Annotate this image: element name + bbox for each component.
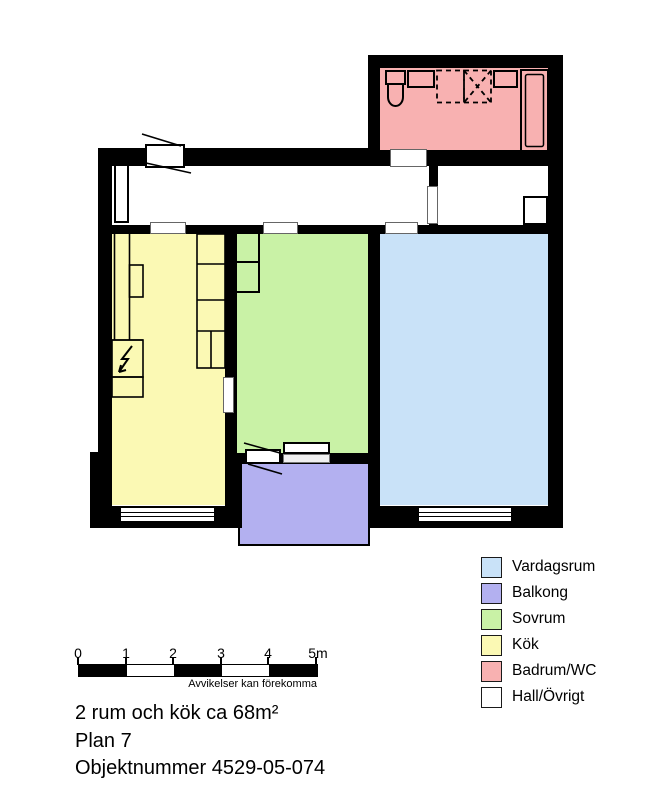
legend-swatch-vardagsrum xyxy=(481,557,502,578)
wall-right xyxy=(548,55,563,528)
legend-label: Balkong xyxy=(512,584,568,602)
room-bedroom xyxy=(237,234,368,453)
plan-line: Plan 7 xyxy=(75,728,325,756)
legend-item: Balkong xyxy=(481,583,596,603)
bedroom-window-sill xyxy=(283,454,330,463)
area-line: 2 rum och kök ca 68m² xyxy=(75,700,325,728)
scale-segment xyxy=(269,665,317,676)
legend-item: Hall/Övrigt xyxy=(481,687,596,707)
hall-wardrobe xyxy=(114,164,129,223)
footer-text: 2 rum och kök ca 68m² Plan 7 Objektnumme… xyxy=(75,700,325,783)
scale-caption: Avvikelser kan förekomma xyxy=(78,678,317,690)
kitchen-bedroom-opening xyxy=(223,377,234,413)
bathroom-door-opening xyxy=(390,149,427,167)
room-bathroom xyxy=(380,68,548,150)
room-livingroom xyxy=(380,234,548,505)
wall-bathroom-top xyxy=(368,55,563,68)
balcony-door xyxy=(245,449,281,464)
legend-item: Sovrum xyxy=(481,609,596,629)
window-line xyxy=(419,512,511,513)
room-hall-main xyxy=(112,166,429,225)
legend-swatch-badrum xyxy=(481,661,502,682)
legend-label: Kök xyxy=(512,636,539,654)
legend-item: Vardagsrum xyxy=(481,557,596,577)
room-balcony xyxy=(238,461,370,546)
hall-divider-door-opening xyxy=(427,186,438,224)
legend: Vardagsrum Balkong Sovrum Kök Badrum/WC … xyxy=(481,557,596,713)
livingroom-door-opening xyxy=(385,222,418,234)
window-line xyxy=(419,516,511,517)
legend-item: Kök xyxy=(481,635,596,655)
object-number-line: Objektnummer 4529-05-074 xyxy=(75,755,325,783)
kitchen-window xyxy=(119,506,216,523)
scale-segment xyxy=(127,665,175,676)
bedroom-window xyxy=(283,442,330,454)
scale-segment xyxy=(174,665,222,676)
legend-label: Vardagsrum xyxy=(512,558,595,576)
scale-number: 5m xyxy=(308,645,327,661)
legend-swatch-kok xyxy=(481,635,502,656)
bedroom-door-opening xyxy=(263,222,298,234)
wall-balcony-left xyxy=(225,453,242,528)
legend-label: Sovrum xyxy=(512,610,565,628)
entrance-door xyxy=(145,144,185,168)
scale-segment xyxy=(222,665,270,676)
legend-label: Hall/Övrigt xyxy=(512,688,584,706)
wall-top xyxy=(98,148,380,166)
floorplan-page: Vardagsrum Balkong Sovrum Kök Badrum/WC … xyxy=(0,0,659,800)
scale-segment xyxy=(79,665,127,676)
scale-bar xyxy=(78,664,318,677)
livingroom-window xyxy=(417,506,513,523)
legend-item: Badrum/WC xyxy=(481,661,596,681)
hall-right-closet xyxy=(523,196,548,225)
kitchen-door-opening xyxy=(150,222,186,234)
legend-swatch-balkong xyxy=(481,583,502,604)
legend-label: Badrum/WC xyxy=(512,662,596,680)
window-line xyxy=(121,512,214,513)
wall-bedroom-living xyxy=(368,225,380,528)
legend-swatch-sovrum xyxy=(481,609,502,630)
room-kitchen xyxy=(112,234,225,505)
legend-swatch-hall xyxy=(481,687,502,708)
window-line xyxy=(121,516,214,517)
